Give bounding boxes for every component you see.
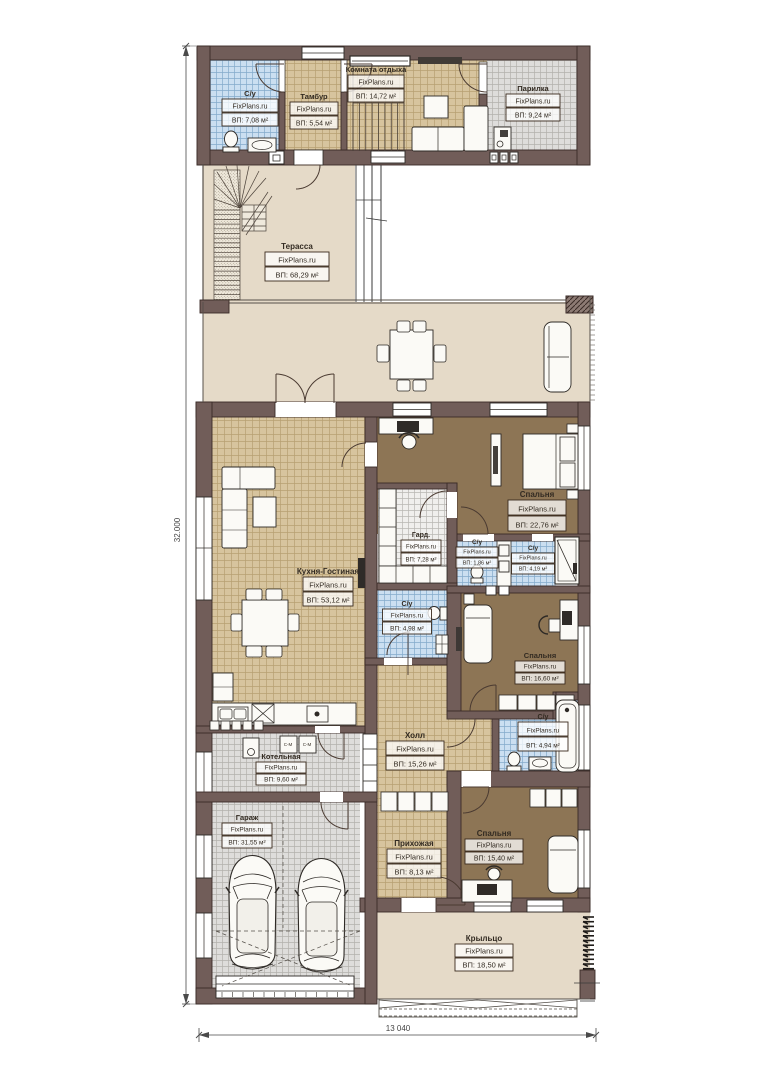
svg-text:ВП: 8,13 м²: ВП: 8,13 м²: [395, 868, 434, 877]
svg-text:Комната отдыха: Комната отдыха: [346, 65, 408, 74]
svg-text:ВП: 18,50 м²: ВП: 18,50 м²: [462, 961, 506, 970]
svg-text:32.000: 32.000: [173, 517, 182, 542]
svg-text:ВП: 16,60 м²: ВП: 16,60 м²: [521, 676, 559, 683]
svg-text:FixPlans.ru: FixPlans.ru: [296, 107, 331, 114]
svg-text:С/у: С/у: [538, 714, 549, 721]
svg-text:Гард.: Гард.: [412, 532, 430, 539]
svg-text:Спальня: Спальня: [524, 651, 556, 660]
svg-text:FixPlans.ru: FixPlans.ru: [309, 581, 347, 590]
svg-text:FixPlans.ru: FixPlans.ru: [395, 853, 433, 862]
svg-text:FixPlans.ru: FixPlans.ru: [231, 827, 264, 834]
svg-text:ВП: 68,29 м²: ВП: 68,29 м²: [275, 271, 319, 280]
svg-text:С/у: С/у: [244, 89, 257, 98]
svg-text:ВП: 4,19 м²: ВП: 4,19 м²: [519, 567, 548, 573]
svg-text:FixPlans.ru: FixPlans.ru: [396, 745, 434, 754]
svg-text:FixPlans.ru: FixPlans.ru: [265, 765, 298, 772]
svg-text:С/у: С/у: [402, 601, 413, 608]
svg-text:Терасса: Терасса: [281, 242, 313, 251]
svg-text:Парилка: Парилка: [517, 84, 549, 93]
svg-text:FixPlans.ru: FixPlans.ru: [519, 556, 547, 562]
svg-text:ВП: 5,54 м²: ВП: 5,54 м²: [296, 121, 333, 128]
svg-text:FixPlans.ru: FixPlans.ru: [406, 545, 436, 551]
svg-text:Прихожая: Прихожая: [394, 839, 434, 848]
svg-text:Котельная: Котельная: [261, 752, 300, 761]
svg-text:FixPlans.ru: FixPlans.ru: [465, 947, 503, 956]
svg-text:ВП: 53,12 м²: ВП: 53,12 м²: [306, 596, 350, 605]
svg-text:ВП: 7,28 м²: ВП: 7,28 м²: [405, 558, 436, 564]
svg-text:ВП: 9,24 м²: ВП: 9,24 м²: [515, 113, 552, 120]
svg-text:ВП: 1,86 м²: ВП: 1,86 м²: [463, 561, 492, 567]
svg-text:FixPlans.ru: FixPlans.ru: [391, 613, 424, 620]
svg-text:Спальня: Спальня: [477, 829, 512, 838]
svg-text:FixPlans.ru: FixPlans.ru: [232, 104, 267, 111]
svg-text:Гараж: Гараж: [236, 813, 259, 822]
svg-text:С-М: С-М: [303, 742, 312, 747]
svg-text:FixPlans.ru: FixPlans.ru: [518, 505, 556, 514]
svg-text:ВП: 15,40 м²: ВП: 15,40 м²: [474, 856, 515, 863]
svg-text:FixPlans.ru: FixPlans.ru: [527, 728, 560, 735]
svg-text:Тамбур: Тамбур: [300, 92, 328, 101]
svg-text:ВП: 22,76 м²: ВП: 22,76 м²: [515, 521, 559, 530]
svg-text:С-М: С-М: [284, 742, 293, 747]
svg-text:ВП: 31,55 м²: ВП: 31,55 м²: [228, 840, 266, 847]
svg-text:FixPlans.ru: FixPlans.ru: [515, 99, 550, 106]
svg-text:ВП: 4,98 м²: ВП: 4,98 м²: [390, 626, 425, 633]
svg-text:FixPlans.ru: FixPlans.ru: [358, 80, 393, 87]
svg-text:С/у: С/у: [528, 545, 539, 552]
svg-text:ВП: 4,94 м²: ВП: 4,94 м²: [526, 743, 561, 750]
svg-text:Холл: Холл: [405, 731, 425, 740]
svg-text:Крыльцо: Крыльцо: [466, 934, 503, 943]
svg-text:Спальня: Спальня: [520, 490, 555, 499]
svg-text:С/у: С/у: [472, 539, 483, 546]
svg-text:13 040: 13 040: [386, 1024, 411, 1033]
svg-text:FixPlans.ru: FixPlans.ru: [463, 550, 491, 556]
svg-text:ВП: 9,60 м²: ВП: 9,60 м²: [264, 777, 299, 784]
svg-text:ВП: 15,26 м²: ВП: 15,26 м²: [393, 760, 437, 769]
svg-text:ВП: 7,08 м²: ВП: 7,08 м²: [232, 118, 269, 125]
svg-text:FixPlans.ru: FixPlans.ru: [476, 843, 511, 850]
svg-text:FixPlans.ru: FixPlans.ru: [278, 256, 316, 265]
svg-text:Кухня-Гостиная: Кухня-Гостиная: [297, 567, 360, 576]
svg-text:ВП: 14,72 м²: ВП: 14,72 м²: [356, 94, 397, 101]
svg-text:FixPlans.ru: FixPlans.ru: [524, 664, 557, 671]
